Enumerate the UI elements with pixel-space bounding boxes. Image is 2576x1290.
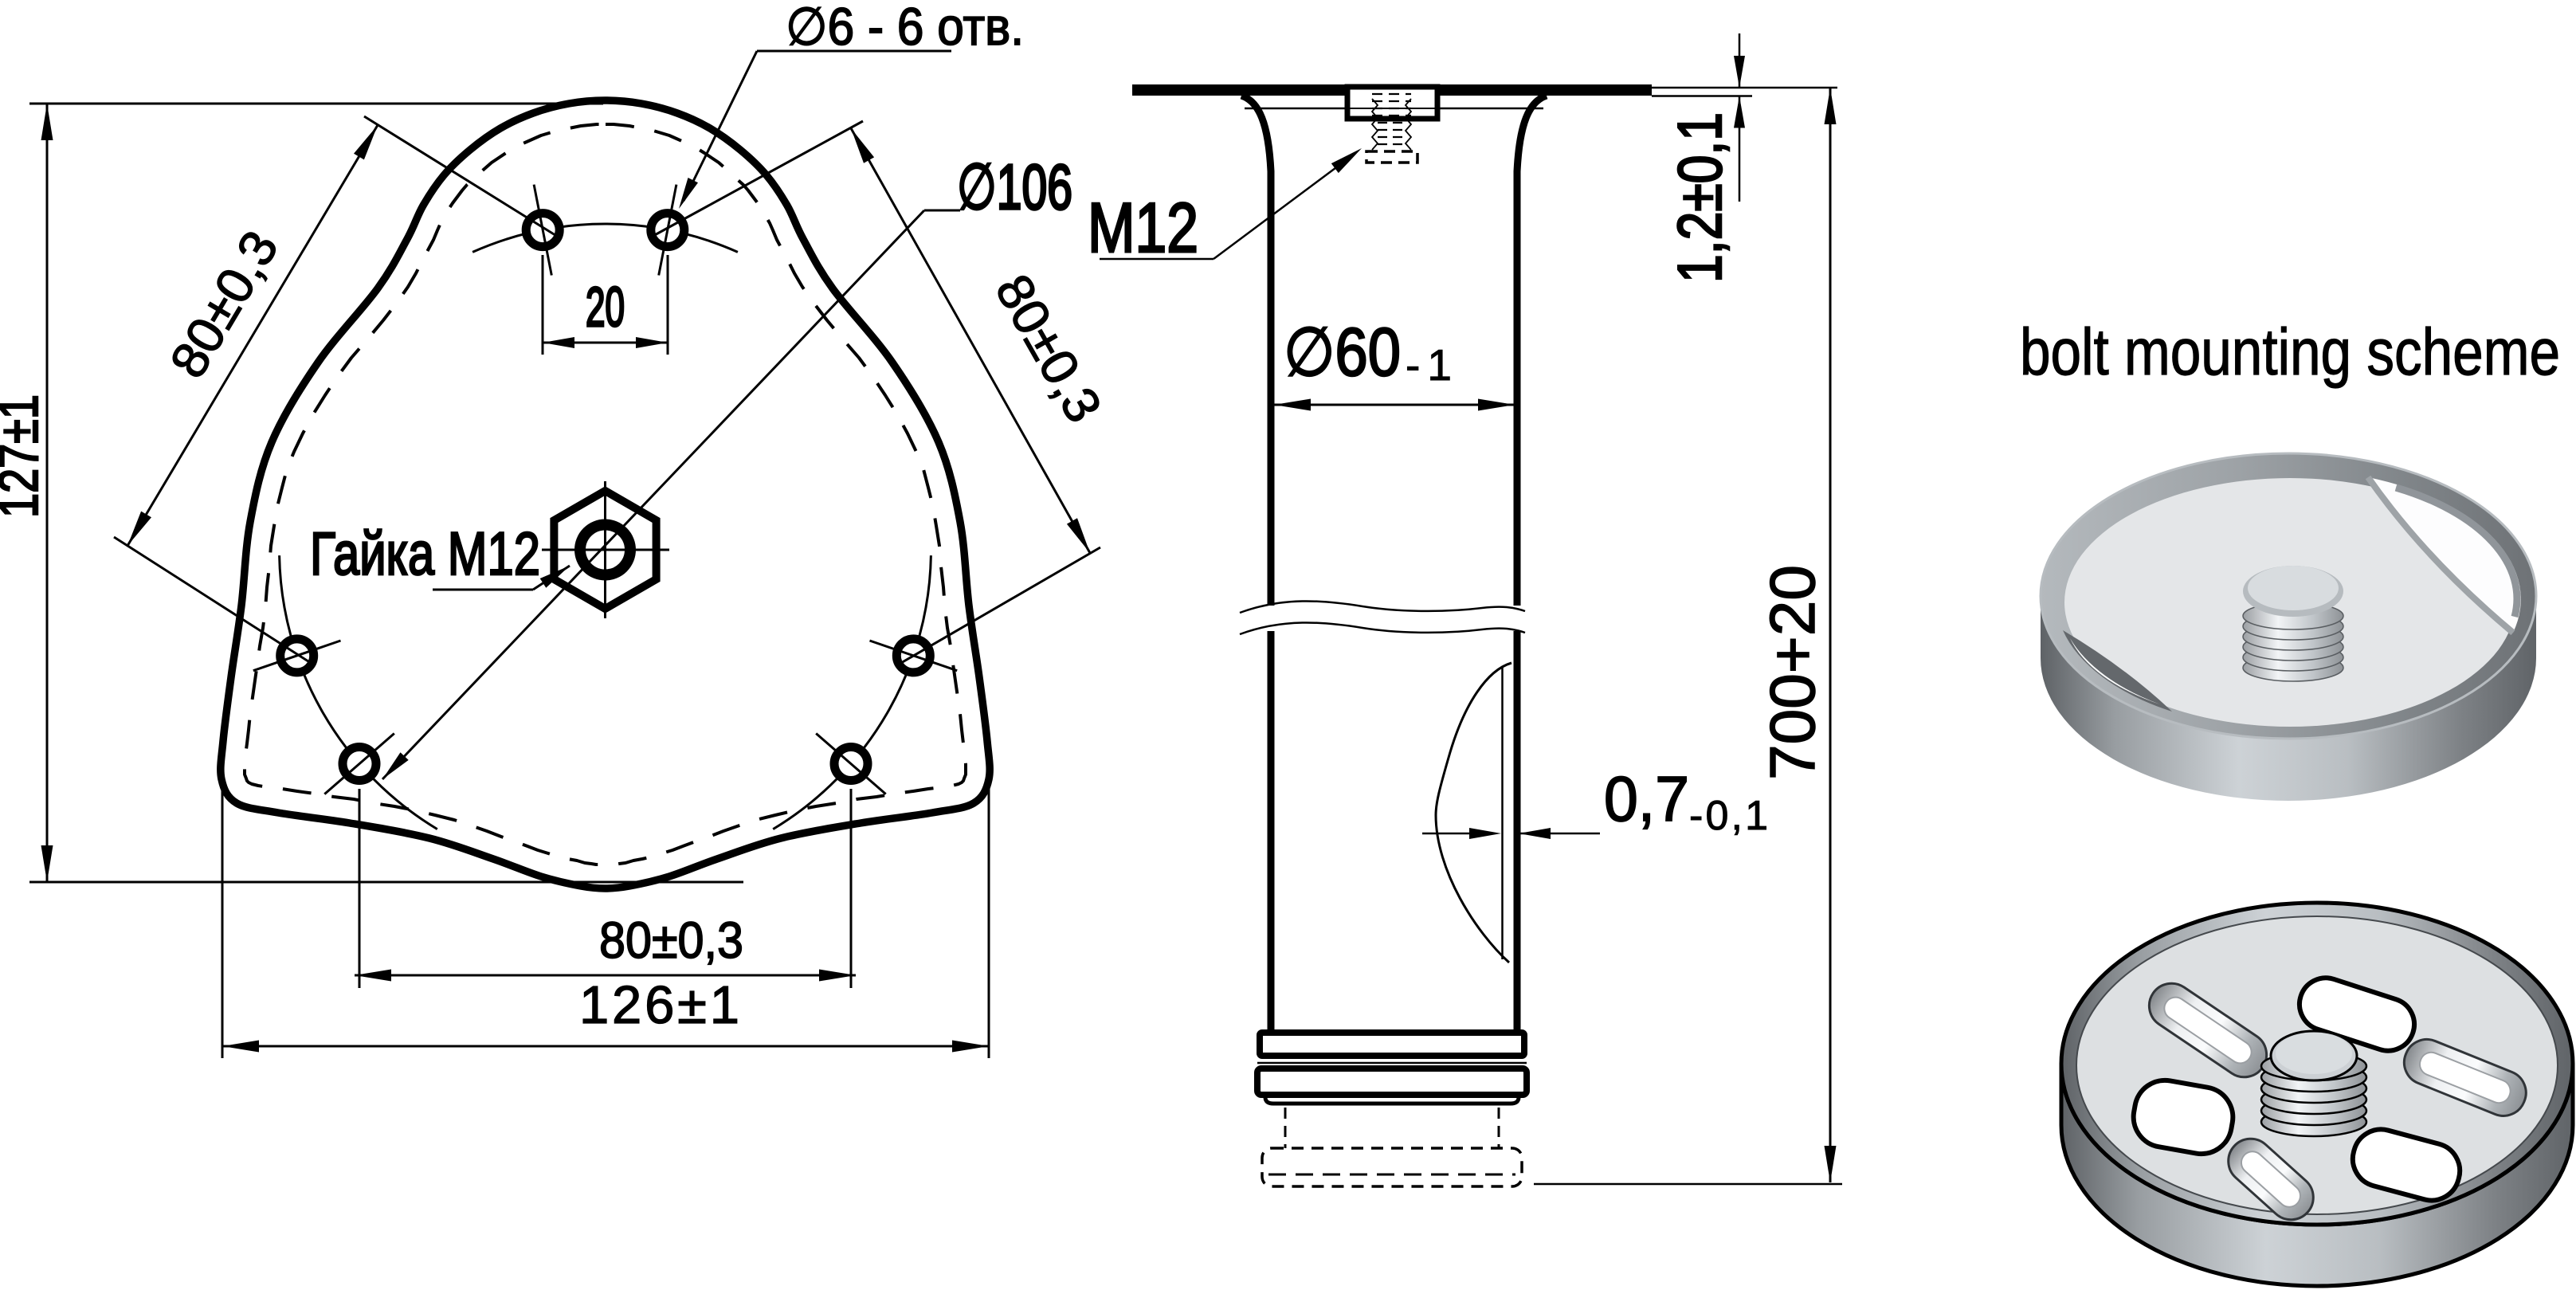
svg-text:127±1: 127±1	[0, 394, 49, 518]
svg-text:∅106: ∅106	[957, 151, 1072, 222]
svg-text:M12: M12	[1088, 188, 1198, 267]
svg-text:bolt mounting scheme: bolt mounting scheme	[2020, 315, 2560, 389]
svg-text:1,2±0,1: 1,2±0,1	[1664, 112, 1735, 283]
svg-text:∅60: ∅60	[1284, 315, 1401, 390]
svg-text:126±1: 126±1	[579, 975, 739, 1035]
svg-text:20: 20	[586, 276, 625, 338]
svg-text:700+20: 700+20	[1757, 565, 1828, 780]
svg-text:0,7: 0,7	[1604, 763, 1689, 834]
svg-text:80±0,3: 80±0,3	[599, 912, 743, 969]
svg-text:∅6 - 6 отв.: ∅6 - 6 отв.	[786, 0, 1024, 56]
svg-text:Гайка М12: Гайка М12	[310, 520, 540, 588]
svg-text:-1: -1	[1406, 340, 1452, 390]
